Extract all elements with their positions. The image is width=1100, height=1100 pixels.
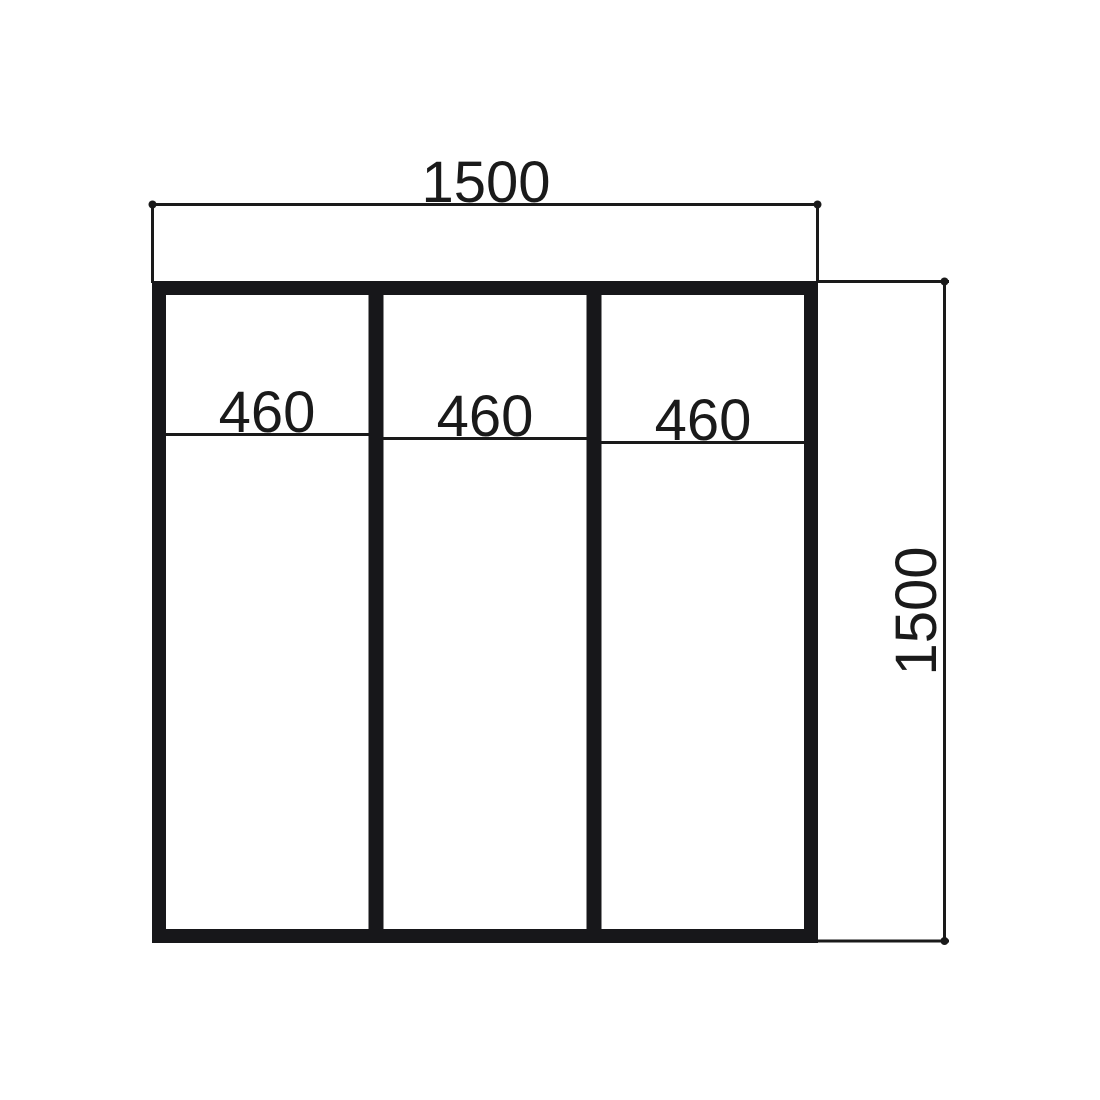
mullion-2 xyxy=(587,295,602,929)
panel-2-width-dimension: 460 xyxy=(383,384,587,449)
dimension-endpoint-dot xyxy=(941,278,949,286)
panel-1-width-label: 460 xyxy=(219,380,316,445)
dimension-endpoint-dot xyxy=(149,201,157,209)
frame-dimension-drawing: 1500 1500 460 460 460 xyxy=(0,0,1100,1100)
panel-3-width-dimension: 460 xyxy=(601,388,804,453)
panel-2-width-label: 460 xyxy=(437,384,534,449)
panel-3-width-label: 460 xyxy=(655,388,752,453)
overall-width-dimension: 1500 xyxy=(149,150,822,283)
dimension-endpoint-dot xyxy=(941,937,949,945)
overall-height-dimension: 1500 xyxy=(818,278,949,946)
drawing-canvas: 1500 1500 460 460 460 xyxy=(0,0,1100,1100)
overall-height-label: 1500 xyxy=(884,546,949,675)
panel-1-width-dimension: 460 xyxy=(166,380,369,445)
dimension-endpoint-dot xyxy=(814,201,822,209)
overall-width-label: 1500 xyxy=(421,150,550,215)
mullion-1 xyxy=(369,295,384,929)
